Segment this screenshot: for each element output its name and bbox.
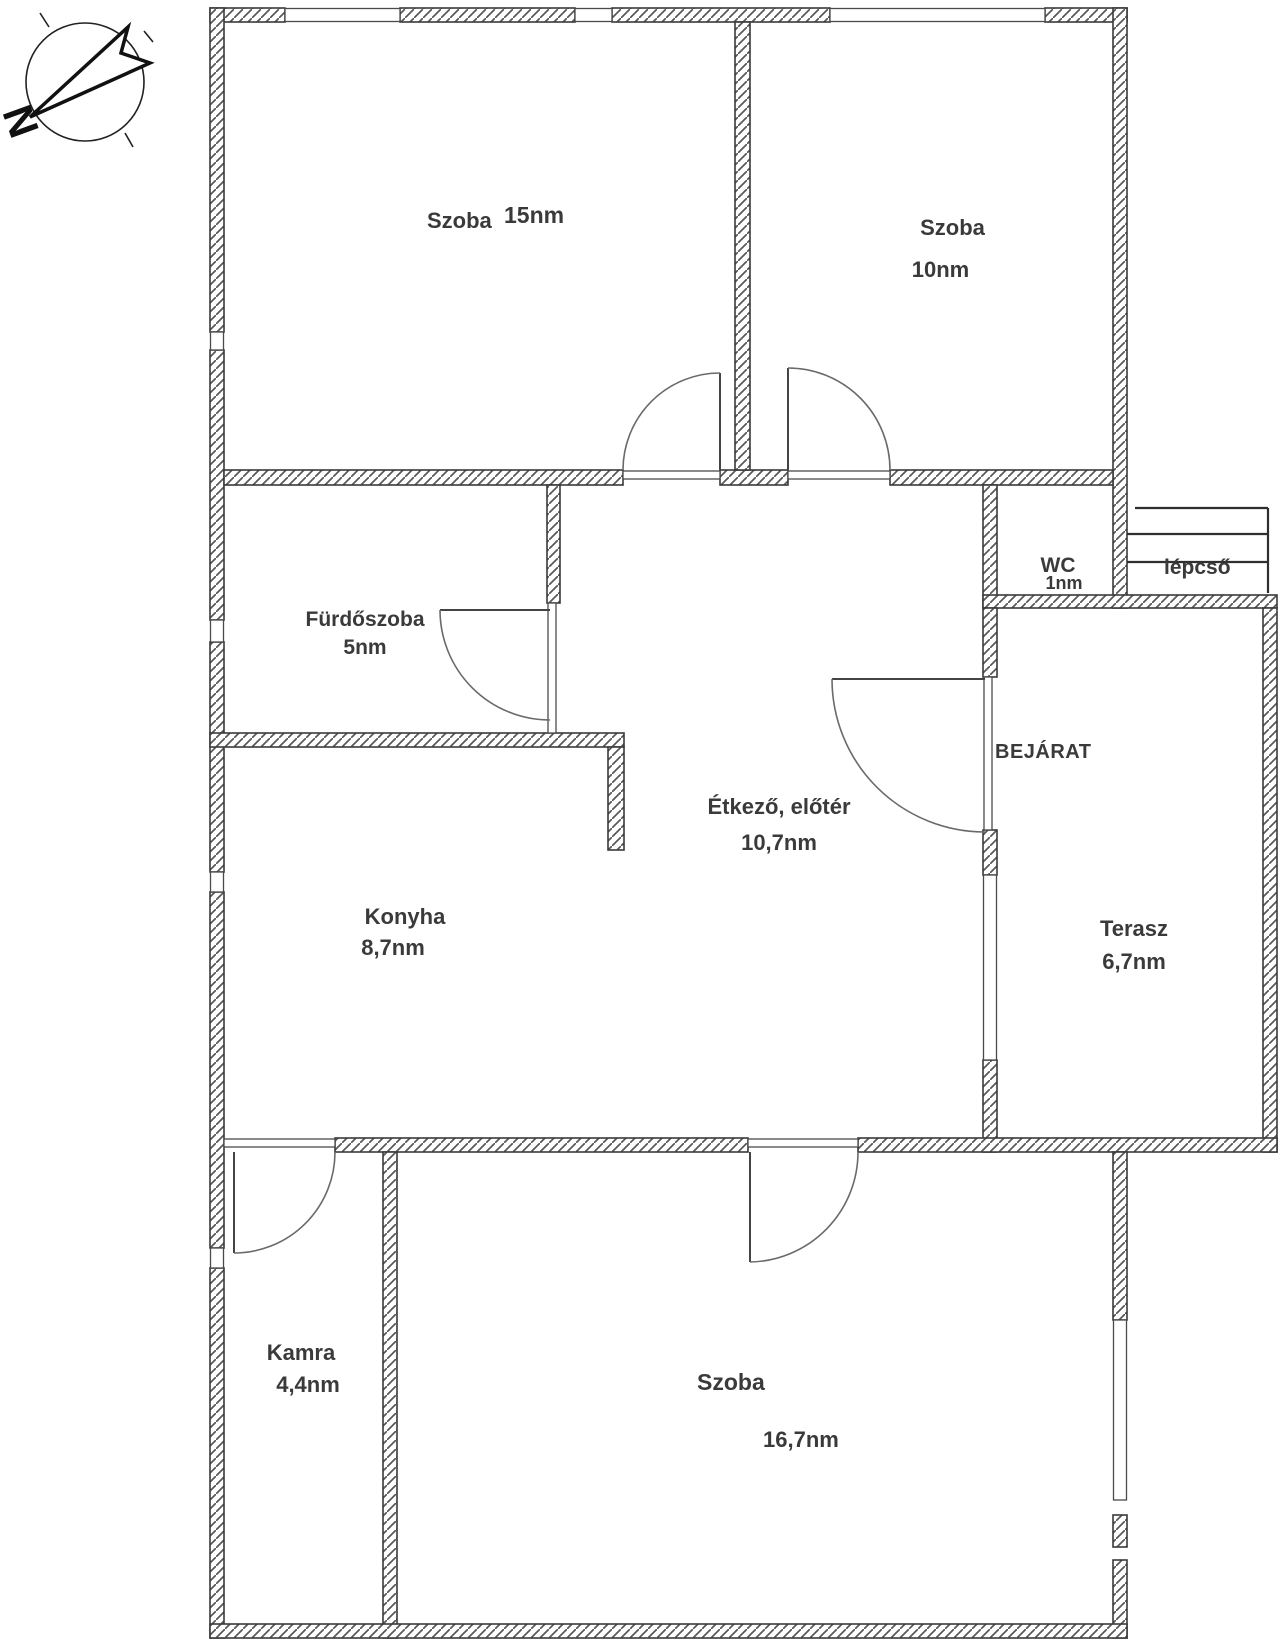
label-bejarat: BEJÁRAT	[995, 741, 1091, 763]
wall-left-2	[210, 350, 224, 620]
wall-kamra-right	[383, 1152, 397, 1638]
label-szoba15-name: Szoba	[427, 209, 492, 233]
wall-mid-1	[224, 470, 623, 485]
compass-north-letter: N	[0, 99, 48, 144]
floor-plan-drawing: N	[0, 0, 1280, 1644]
wall-top-3	[612, 8, 830, 22]
wall-right-lower-1	[1113, 1152, 1127, 1320]
threshold-furdo-door	[548, 603, 556, 733]
label-konyha-area: 8,7nm	[318, 936, 468, 960]
door-arc-szoba-nagy	[750, 1152, 858, 1262]
label-terasz-area: 6,7nm	[1059, 950, 1209, 974]
wall-konyha-bottom-2	[858, 1138, 1277, 1152]
wall-wc-bottom	[983, 595, 1277, 608]
wall-bejarat-1	[983, 608, 997, 677]
window-left-4	[211, 1248, 224, 1268]
wall-left-3	[210, 642, 224, 872]
wall-left-4	[210, 892, 224, 1248]
window-left-3	[211, 872, 224, 892]
compass: N	[0, 13, 153, 147]
label-furdoszoba-name: Fürdőszoba	[280, 608, 450, 631]
wall-mid-2	[720, 470, 788, 485]
wall-right-upper	[1113, 8, 1127, 608]
window-szoba-nagy	[1114, 1320, 1127, 1500]
threshold-szoba10-door	[788, 471, 890, 479]
label-furdoszoba-area: 5nm	[280, 636, 450, 659]
door-arc-szoba10	[788, 368, 890, 470]
wall-bottom	[210, 1624, 1127, 1638]
compass-needle	[30, 27, 150, 117]
threshold-szoba15-door	[623, 471, 720, 479]
door-arc-kamra	[234, 1152, 335, 1253]
door-arc-szoba15	[623, 373, 720, 470]
label-terasz-name: Terasz	[1059, 917, 1209, 941]
wall-right-lower-2	[1113, 1515, 1127, 1547]
label-szoba-nagy-name: Szoba	[697, 1370, 765, 1395]
wall-konyha-stub	[608, 747, 624, 850]
compass-tick-nw	[40, 13, 49, 27]
door-arc-furdo	[440, 610, 550, 720]
threshold-kamra-door	[224, 1139, 335, 1147]
wall-left-5	[210, 1268, 224, 1638]
wall-wc-left	[983, 485, 997, 608]
threshold-szoba-nagy-door	[748, 1139, 858, 1147]
compass-tick-se	[125, 133, 133, 147]
window-szoba10	[830, 9, 1045, 22]
wall-furdo-right	[547, 485, 560, 603]
label-wc-area: 1nm	[1019, 574, 1109, 594]
wall-szoba-divider	[735, 22, 750, 470]
wall-furdo-bottom	[210, 733, 624, 747]
label-kamra-area: 4,4nm	[233, 1373, 383, 1397]
wall-konyha-bottom-1	[335, 1138, 748, 1152]
wall-left-1	[210, 8, 224, 332]
window-left-2	[211, 620, 224, 642]
label-etkezo-area: 10,7nm	[664, 831, 894, 855]
window-left-1	[211, 332, 224, 350]
compass-tick-ne	[144, 31, 153, 42]
window-szoba15	[285, 9, 400, 22]
label-szoba15-area: 15nm	[504, 203, 564, 228]
label-szoba-nagy-area: 16,7nm	[763, 1428, 839, 1452]
threshold-bejarat-door	[984, 677, 992, 830]
window-top-small	[575, 9, 612, 22]
wall-top-2	[400, 8, 575, 22]
label-szoba10-name: Szoba	[880, 216, 1025, 240]
label-kamra-name: Kamra	[226, 1341, 376, 1365]
wall-bejarat-2	[983, 830, 997, 875]
stairs-layer	[1127, 508, 1268, 593]
floor-plan-page: N Szoba 15nm Szoba 10nm Fürdőszoba 5nm W…	[0, 0, 1280, 1644]
wall-mid-3	[890, 470, 1113, 485]
window-bejarat-wall	[984, 875, 997, 1060]
label-lepcso: lépcső	[1164, 556, 1231, 579]
label-konyha-name: Konyha	[330, 905, 480, 929]
label-etkezo-name: Étkező, előtér	[664, 795, 894, 819]
label-szoba10-area: 10nm	[868, 258, 1013, 282]
wall-terasz-right	[1263, 608, 1277, 1152]
